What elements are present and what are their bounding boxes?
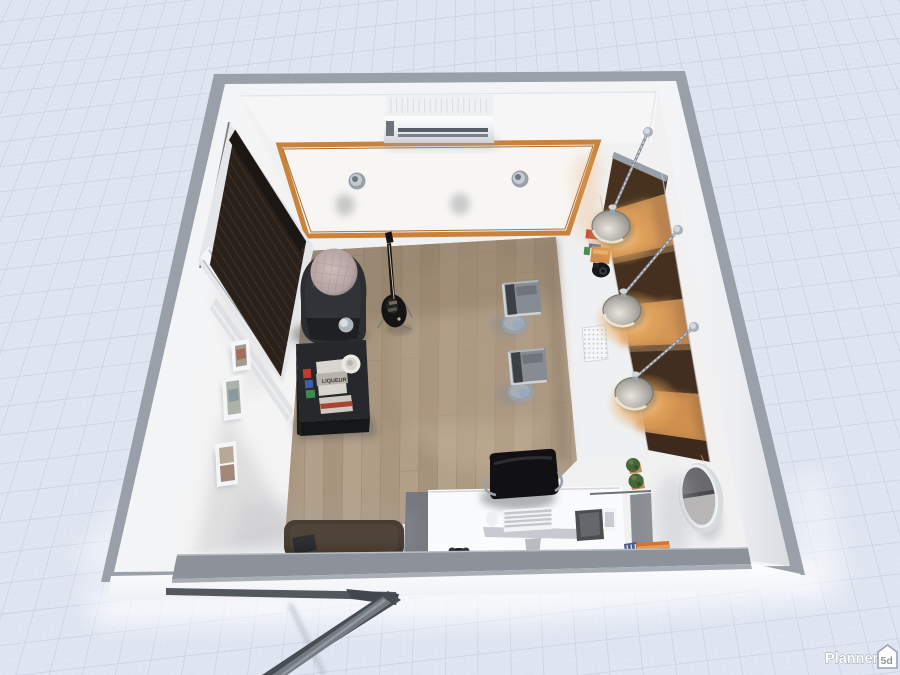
svg-text:Planner: Planner xyxy=(825,651,879,667)
svg-text:5d: 5d xyxy=(881,655,893,667)
